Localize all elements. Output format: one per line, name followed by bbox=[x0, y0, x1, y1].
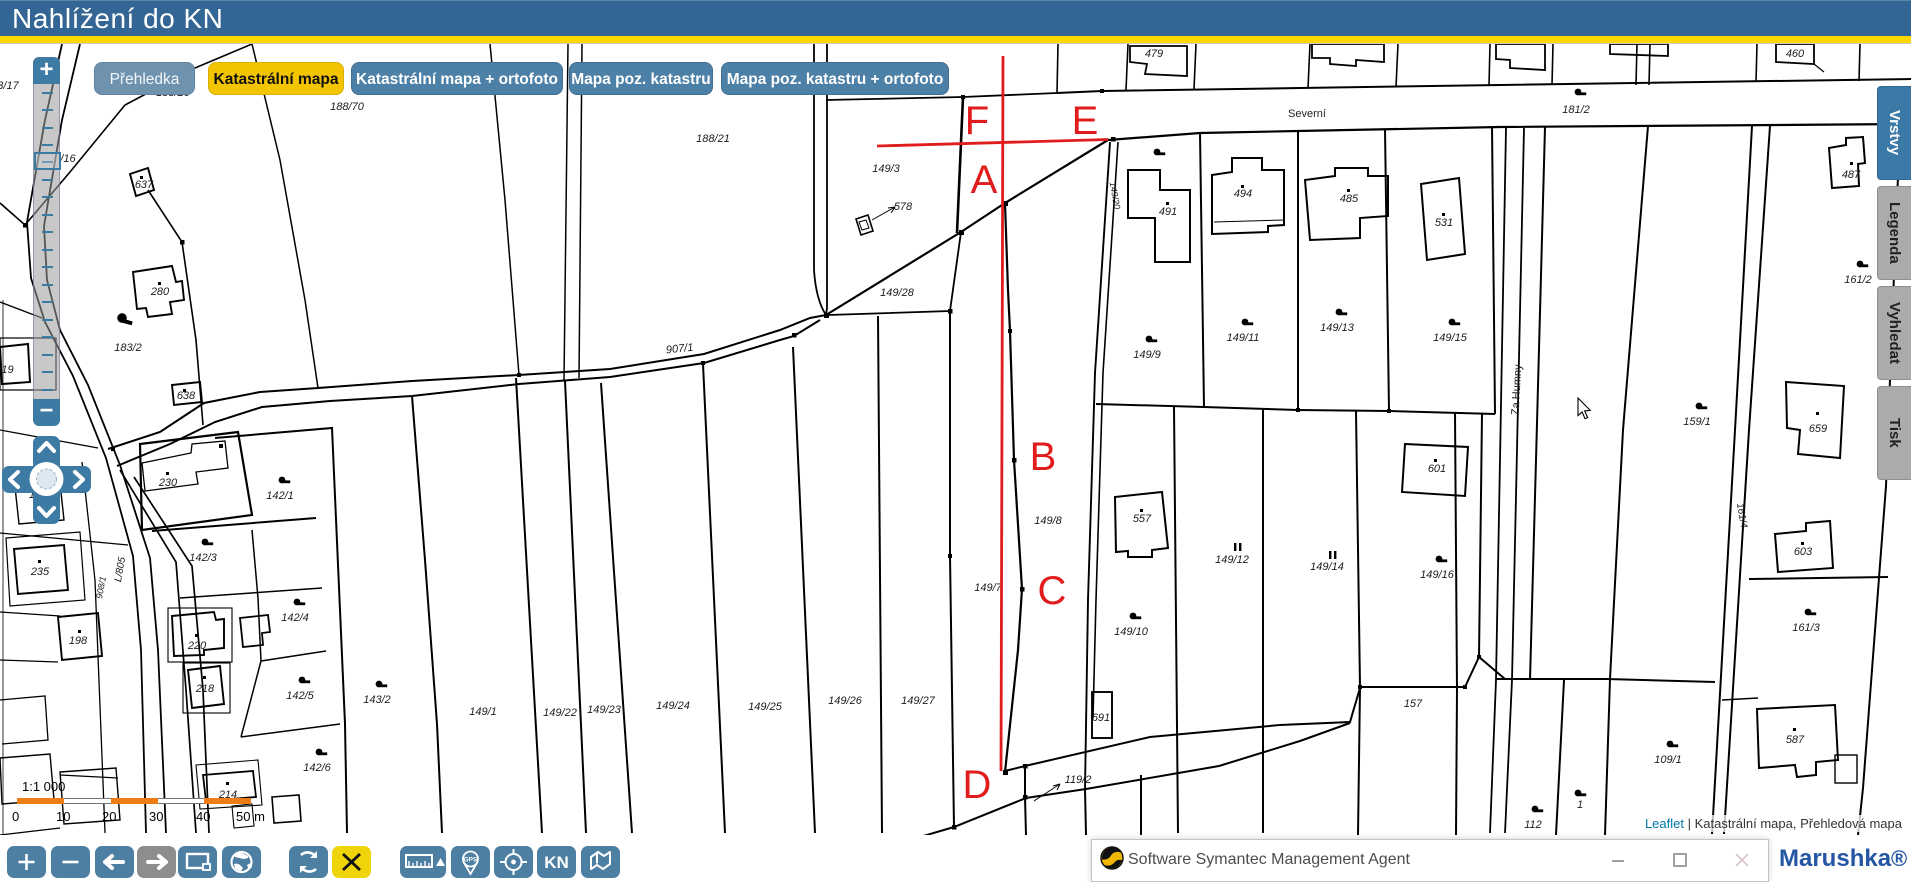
svg-text:908/1: 908/1 bbox=[94, 576, 108, 600]
svg-text:149/9: 149/9 bbox=[1133, 349, 1161, 361]
svg-text:557: 557 bbox=[1133, 513, 1152, 525]
svg-text:188/70: 188/70 bbox=[330, 101, 365, 113]
svg-text:109/1: 109/1 bbox=[1654, 754, 1682, 766]
svg-text:/16: /16 bbox=[59, 153, 76, 165]
svg-text:L/805: L/805 bbox=[113, 556, 128, 583]
svg-text:220: 220 bbox=[187, 640, 207, 652]
svg-text:112: 112 bbox=[1524, 819, 1542, 831]
svg-text:142/6: 142/6 bbox=[303, 762, 331, 774]
svg-text:142/4: 142/4 bbox=[281, 612, 309, 624]
svg-text:149/7: 149/7 bbox=[974, 582, 1002, 594]
svg-text:531: 531 bbox=[1435, 217, 1453, 229]
svg-text:149/24: 149/24 bbox=[656, 700, 690, 712]
svg-text:149/26: 149/26 bbox=[828, 695, 863, 707]
svg-text:691: 691 bbox=[1092, 712, 1110, 724]
svg-text:161/3: 161/3 bbox=[1792, 622, 1820, 634]
svg-text:142/1: 142/1 bbox=[266, 490, 294, 502]
svg-text:119/2: 119/2 bbox=[1065, 774, 1092, 786]
svg-text:3/17: 3/17 bbox=[0, 80, 20, 92]
svg-text:188/21: 188/21 bbox=[696, 133, 730, 145]
svg-text:149/10: 149/10 bbox=[1114, 626, 1149, 638]
svg-text:B: B bbox=[1030, 435, 1057, 479]
svg-text:GPS: GPS bbox=[464, 857, 478, 864]
svg-text:235: 235 bbox=[30, 566, 50, 578]
svg-text:Severní: Severní bbox=[1288, 108, 1326, 120]
svg-text:/19: /19 bbox=[0, 364, 14, 376]
svg-text:161/4: 161/4 bbox=[1734, 502, 1749, 529]
svg-text:494: 494 bbox=[1234, 188, 1252, 200]
svg-text:Za Humny: Za Humny bbox=[1510, 364, 1525, 416]
svg-text:157: 157 bbox=[1404, 698, 1423, 710]
svg-text:603: 603 bbox=[1794, 546, 1813, 558]
svg-text:149/27: 149/27 bbox=[901, 695, 936, 707]
svg-text:149/3: 149/3 bbox=[872, 163, 900, 175]
svg-text:1: 1 bbox=[1577, 799, 1583, 811]
svg-text:149/14: 149/14 bbox=[1310, 561, 1344, 573]
svg-text:149/28: 149/28 bbox=[880, 287, 915, 299]
svg-text:143/2: 143/2 bbox=[363, 694, 391, 706]
svg-text:149/20: 149/20 bbox=[1108, 181, 1123, 210]
svg-text:578: 578 bbox=[894, 201, 913, 213]
svg-text:149/25: 149/25 bbox=[748, 701, 783, 713]
svg-text:601: 601 bbox=[1428, 463, 1446, 475]
svg-text:149/11: 149/11 bbox=[1227, 332, 1260, 344]
svg-text:637: 637 bbox=[135, 179, 154, 191]
svg-text:218: 218 bbox=[195, 683, 215, 695]
svg-text:KN: KN bbox=[544, 853, 569, 872]
svg-text:142/5: 142/5 bbox=[286, 690, 314, 702]
svg-text:659: 659 bbox=[1809, 423, 1827, 435]
svg-text:A: A bbox=[971, 158, 998, 202]
svg-text:587: 587 bbox=[1786, 734, 1805, 746]
svg-text:198: 198 bbox=[69, 635, 88, 647]
svg-text:161/2: 161/2 bbox=[1844, 274, 1872, 286]
svg-text:491: 491 bbox=[1159, 206, 1177, 218]
svg-text:F: F bbox=[965, 99, 989, 143]
svg-text:149/1: 149/1 bbox=[469, 706, 497, 718]
svg-text:149/22: 149/22 bbox=[543, 707, 577, 719]
svg-text:142/3: 142/3 bbox=[189, 552, 217, 564]
svg-text:149/16: 149/16 bbox=[1420, 569, 1455, 581]
svg-text:280: 280 bbox=[150, 286, 170, 298]
svg-text:149/13: 149/13 bbox=[1320, 322, 1355, 334]
svg-text:487: 487 bbox=[1842, 169, 1861, 181]
svg-text:230: 230 bbox=[158, 477, 178, 489]
svg-text:C: C bbox=[1038, 569, 1067, 613]
svg-text:460: 460 bbox=[1786, 48, 1805, 60]
svg-text:149/8: 149/8 bbox=[1034, 515, 1062, 527]
svg-text:479: 479 bbox=[1145, 48, 1163, 60]
svg-text:159/1: 159/1 bbox=[1683, 416, 1711, 428]
svg-text:149/12: 149/12 bbox=[1215, 554, 1249, 566]
svg-text:181/2: 181/2 bbox=[1562, 104, 1590, 116]
svg-text:638: 638 bbox=[177, 390, 196, 402]
svg-text:D: D bbox=[963, 763, 992, 807]
svg-text:907/1: 907/1 bbox=[665, 342, 694, 357]
svg-text:149/23: 149/23 bbox=[587, 704, 622, 716]
svg-text:149/15: 149/15 bbox=[1433, 332, 1468, 344]
svg-text:183/2: 183/2 bbox=[114, 342, 142, 354]
svg-text:485: 485 bbox=[1340, 193, 1359, 205]
svg-text:E: E bbox=[1072, 99, 1099, 143]
